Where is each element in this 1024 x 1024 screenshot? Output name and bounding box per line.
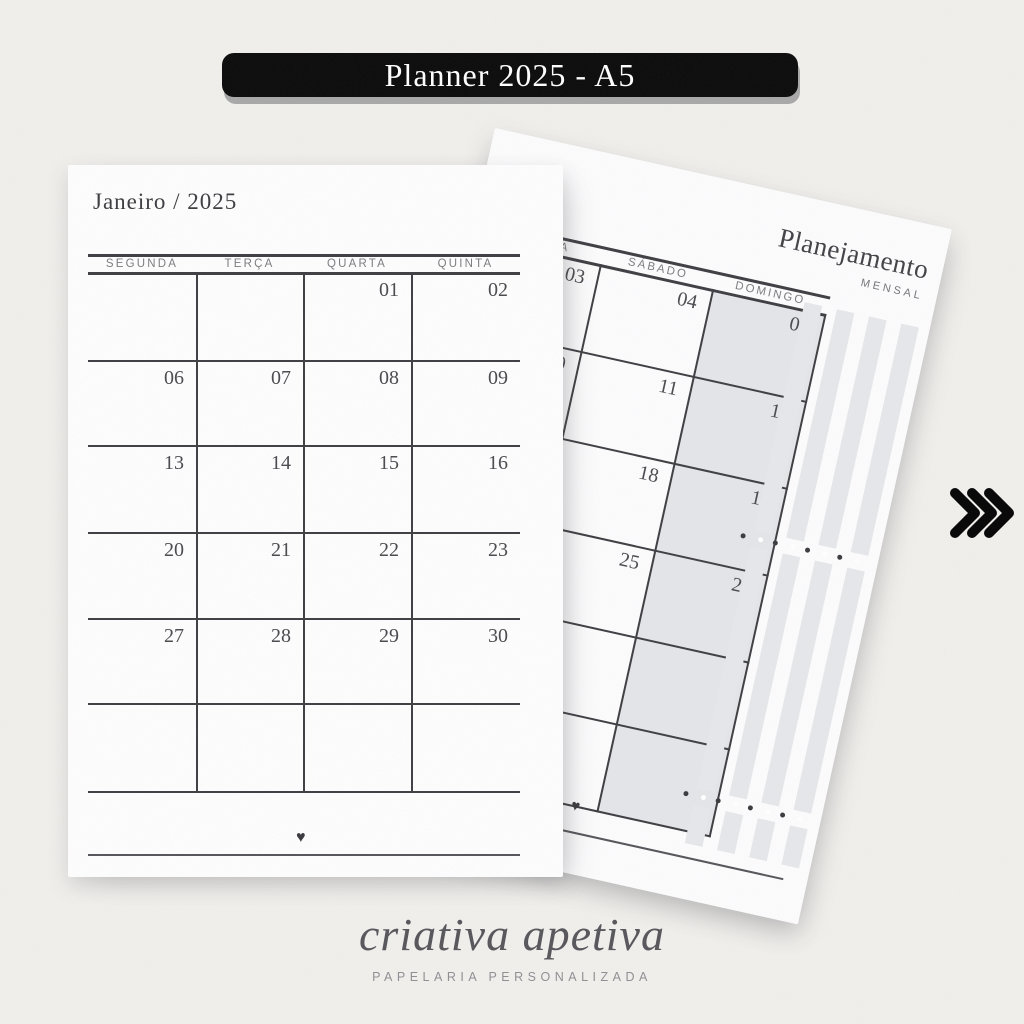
dot (822, 551, 828, 557)
heart-icon: ♥ (569, 797, 581, 816)
date-cell: 30 (488, 625, 508, 648)
date-cell: 06 (164, 367, 184, 390)
footer-rule (88, 854, 520, 856)
washi-bar (749, 818, 775, 861)
date-cell: 27 (164, 625, 184, 648)
page-title: Planejamento (776, 222, 932, 285)
dot (772, 540, 778, 546)
date-cell: 16 (488, 452, 508, 475)
date-cell: 03 (563, 263, 588, 290)
dot (854, 558, 860, 564)
title-banner: Planner 2025 - A5 (222, 53, 798, 97)
dot (797, 816, 803, 822)
dot (733, 802, 739, 808)
dot (805, 547, 811, 553)
date-cell: 29 (379, 625, 399, 648)
product-mockup: Planner 2025 - A5 Planejamento MENSAL SE… (0, 0, 1024, 1024)
date-cell: 11 (656, 375, 680, 402)
dot (715, 798, 721, 804)
brand-footer: criativa apetiva PAPELARIA PERSONALIZADA (0, 908, 1024, 984)
date-cell: 28 (271, 625, 291, 648)
grid-line (88, 703, 520, 705)
day-header-terca: TERÇA (196, 258, 303, 272)
day-header-segunda: SEGUNDA (88, 258, 196, 272)
banner-label: Planner 2025 - A5 (385, 57, 636, 94)
grid-line (88, 360, 520, 362)
date-cell: 04 (675, 288, 700, 315)
date-cell: 20 (164, 539, 184, 562)
date-cell: 22 (379, 539, 399, 562)
date-cell: 07 (271, 367, 291, 390)
brand-tagline: PAPELARIA PERSONALIZADA (0, 970, 1024, 984)
day-header-quinta: QUINTA (411, 258, 520, 272)
day-header-quarta: QUARTA (303, 258, 411, 272)
dot (837, 554, 843, 560)
planner-page-left: Janeiro / 2025 SEGUNDA TERÇA QUARTA QUIN… (68, 165, 563, 877)
dot (780, 812, 786, 818)
date-cell: 23 (488, 539, 508, 562)
washi-bar (781, 825, 807, 868)
date-cell: 14 (271, 452, 291, 475)
triple-chevron-right-icon (947, 484, 1017, 542)
grid-line (88, 791, 520, 793)
next-arrow[interactable] (947, 484, 1017, 547)
grid-line (88, 445, 520, 447)
dot (747, 805, 753, 811)
page-title: Janeiro / 2025 (93, 189, 237, 215)
date-cell: 01 (379, 279, 399, 302)
date-cell: 15 (379, 452, 399, 475)
header-rule-top (88, 254, 520, 257)
date-cell: 21 (271, 539, 291, 562)
date-cell: 09 (488, 367, 508, 390)
date-cell: 25 (617, 548, 642, 575)
heart-icon: ♥ (296, 829, 306, 847)
date-cell: 02 (488, 279, 508, 302)
grid-line (88, 618, 520, 620)
date-cell: 13 (164, 452, 184, 475)
date-cell: 18 (636, 462, 661, 489)
brand-wordmark: criativa apetiva (0, 908, 1024, 961)
washi-bar (717, 811, 743, 854)
grid-line (88, 532, 520, 534)
dot (790, 544, 796, 550)
date-cell: 08 (379, 367, 399, 390)
dot (765, 809, 771, 815)
